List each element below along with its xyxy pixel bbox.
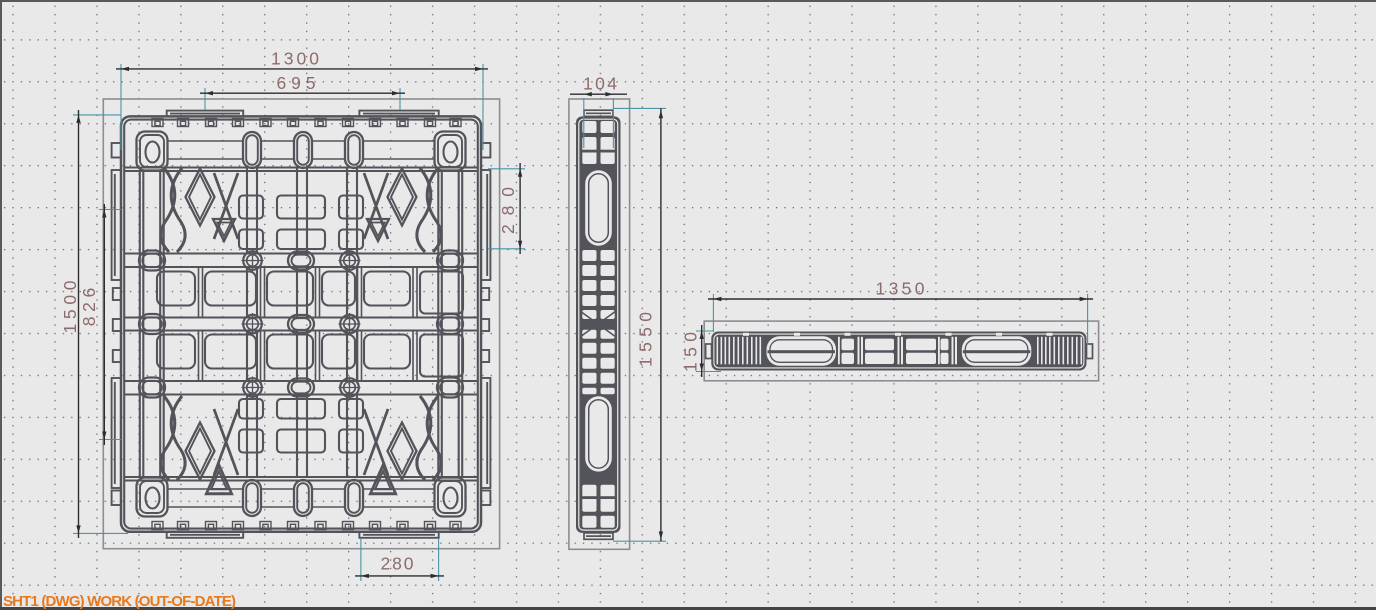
svg-text:SHT1 (DWG) WORK (OUT-OF-DATE): SHT1 (DWG) WORK (OUT-OF-DATE) [3, 593, 236, 610]
svg-text:280: 280 [498, 187, 518, 234]
svg-text:695: 695 [277, 73, 316, 93]
svg-text:104: 104 [583, 74, 617, 94]
svg-text:280: 280 [381, 554, 414, 574]
svg-text:826: 826 [79, 288, 99, 327]
svg-text:150: 150 [681, 332, 701, 372]
